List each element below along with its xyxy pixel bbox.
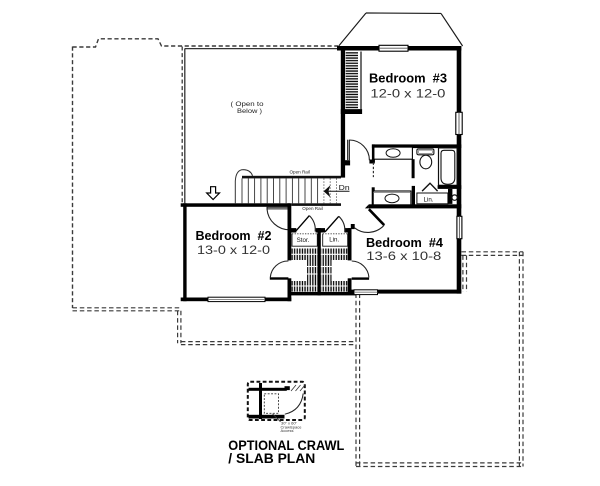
svg-text:13-6 x 10-8: 13-6 x 10-8 [366, 249, 441, 263]
svg-text:Bedroom #4: Bedroom #4 [366, 235, 444, 250]
svg-text:Below ): Below ) [237, 108, 262, 115]
svg-text:Bedroom #2: Bedroom #2 [196, 228, 272, 243]
svg-text:12-0 x 12-0: 12-0 x 12-0 [370, 87, 445, 101]
svg-text:Dn: Dn [339, 183, 350, 192]
svg-text:( Open to: ( Open to [231, 101, 265, 108]
svg-text:13-0 x 12-0: 13-0 x 12-0 [197, 243, 270, 257]
svg-text:Access: Access [281, 428, 294, 433]
svg-text:Lin.: Lin. [424, 196, 434, 203]
svg-text:Open Rail: Open Rail [289, 170, 309, 175]
svg-text:/ SLAB PLAN: / SLAB PLAN [228, 451, 315, 466]
svg-text:Lin.: Lin. [329, 237, 339, 244]
svg-text:Open Rail: Open Rail [302, 206, 322, 211]
svg-text:Bedroom #3: Bedroom #3 [369, 71, 447, 86]
svg-text:Stor.: Stor. [297, 237, 310, 244]
